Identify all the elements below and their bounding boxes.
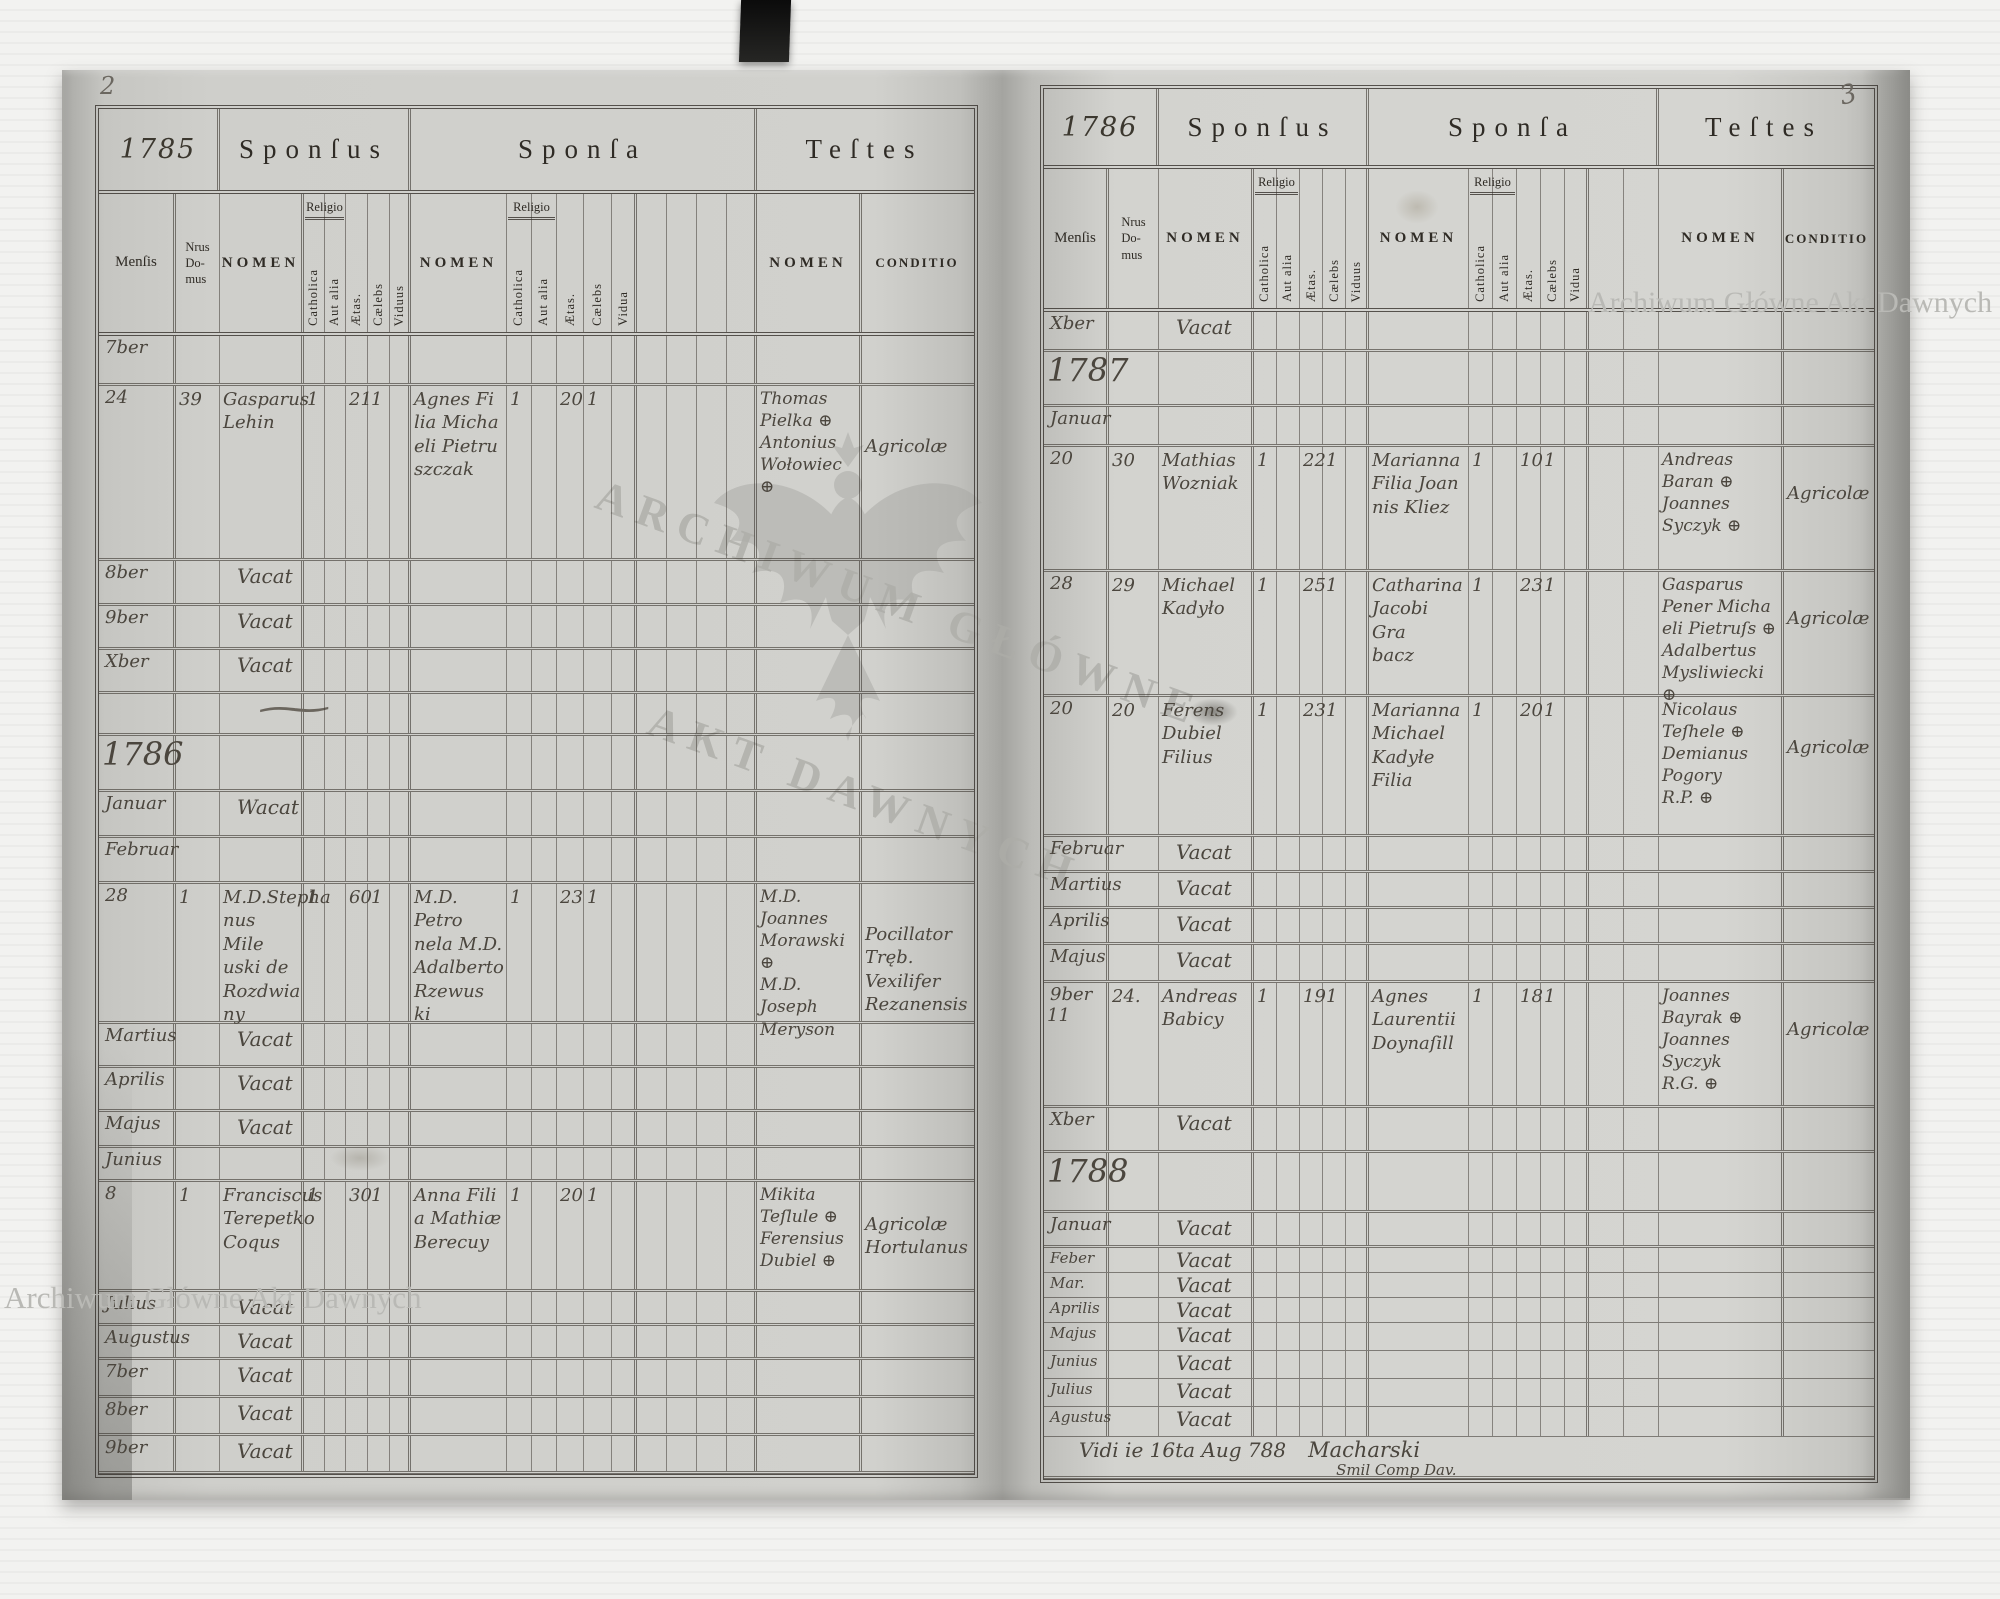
sponsa-aut-alia-cell [1493, 572, 1517, 694]
blank-cell [727, 606, 757, 647]
blank-cell [1624, 1153, 1659, 1210]
sponsus-viduus-cell [1346, 1351, 1369, 1378]
sponsus-aut-alia-cell [325, 606, 346, 647]
testes-name-cell [757, 650, 862, 691]
sponsa-catholica-cell [1469, 1351, 1493, 1378]
sponsus-aetas-cell [346, 650, 368, 691]
sponsus-aut-alia-cell [325, 1182, 346, 1289]
sponsa-caelebs-cell [584, 1112, 612, 1145]
sponsus-aut-alia-cell [1277, 945, 1300, 980]
register-row: FebruarVacat [1044, 837, 1874, 873]
sponsus-catholica-cell [304, 1398, 325, 1433]
mensis-cell: Xber [1044, 1108, 1109, 1150]
sponsa-caelebs-cell [1541, 1108, 1565, 1150]
sponsa-name-cell [411, 1068, 507, 1109]
conditio-cell [862, 561, 972, 603]
sponsa-caelebs-cell [1541, 1213, 1565, 1245]
sponsus-catholica-cell [1254, 873, 1277, 906]
blank-cell [697, 1112, 727, 1145]
sponsa-catholica-cell [1469, 1213, 1493, 1245]
sponsus-name-cell: Vacat [1159, 312, 1254, 349]
sponsus-name-cell: Vacat [1159, 873, 1254, 906]
sponsa-catholica-cell [507, 1292, 532, 1323]
sponsus-caelebs-cell [368, 1436, 390, 1471]
sponsa-aut-alia-cell [1493, 1213, 1517, 1245]
sponsus-aut-alia-cell [325, 1326, 346, 1357]
conditio-cell [1784, 1273, 1869, 1297]
sponsa-aut-alia-cell [532, 650, 557, 691]
house-number-cell [176, 650, 220, 691]
sponsa-catholica-cell [1469, 1323, 1493, 1350]
page-number-left: 2 [100, 72, 115, 100]
testes-name-cell [757, 1068, 862, 1109]
testes-name-cell [757, 792, 862, 835]
sponsa-vidua-cell [612, 838, 637, 881]
sponsus-caelebs-cell [368, 1326, 390, 1357]
register-row: 1787 [1044, 352, 1874, 407]
blank-cell [697, 1398, 727, 1433]
blank-cell [697, 1182, 727, 1289]
house-number-cell [1109, 407, 1159, 444]
blank-cell [697, 1436, 727, 1471]
mensis-cell [99, 694, 176, 733]
house-number-cell [176, 1360, 220, 1395]
sponsa-caelebs-cell [1541, 1323, 1565, 1350]
house-number-cell [176, 1326, 220, 1357]
sponsus-aut-alia-cell [1277, 312, 1300, 349]
mensis-cell: 9ber [99, 1436, 176, 1471]
sponsa-vidua-cell [612, 1024, 637, 1065]
sponsa-aetas-cell [1517, 837, 1541, 870]
sponsa-vidua-cell [1565, 1153, 1589, 1210]
sponsus-aut-alia-cell [1277, 1323, 1300, 1350]
conditio-cell [1784, 837, 1869, 870]
sponsus-aut-alia-cell [1277, 837, 1300, 870]
sponsa-aetas-cell [557, 1360, 584, 1395]
sponsus-viduus-cell [390, 650, 411, 691]
blank-cell [1624, 1108, 1659, 1150]
blank-cell [697, 1068, 727, 1109]
conditio-cell [862, 694, 972, 733]
blank-cell [1589, 1407, 1624, 1436]
sponsus-aetas-cell [1300, 1248, 1323, 1272]
blank-column [637, 194, 667, 332]
testes-name-cell: M.D. Joannes Morawski ⊕ M.D. Joseph Mery… [757, 884, 862, 1021]
sponsa-aetas-cell [557, 1436, 584, 1471]
sponsus-viduus-cell [390, 736, 411, 789]
sponsa-vidua-cell [612, 1068, 637, 1109]
testes-name-cell [1659, 1153, 1784, 1210]
conditio-cell [862, 650, 972, 691]
sponsa-aetas-cell: 23 [557, 884, 584, 1021]
sponsus-catholica-cell [1254, 1213, 1277, 1245]
blank-cell [727, 336, 757, 383]
sponsus-viduus-cell [390, 1182, 411, 1289]
sponsa-name-cell [411, 1360, 507, 1395]
blank-cell [727, 1360, 757, 1395]
sponsa-catholica-cell [507, 1398, 532, 1433]
register-row: Junius [99, 1148, 974, 1182]
blank-cell [1589, 909, 1624, 942]
blank-cell [1589, 1153, 1624, 1210]
sponsus-caelebs-cell [1323, 1323, 1346, 1350]
scanner-clip [739, 0, 791, 62]
sponsus-catholica-cell [1254, 312, 1277, 349]
conditio-cell [862, 1292, 972, 1323]
inspector-signature: Macharski [1308, 1437, 1456, 1464]
blank-cell [667, 1024, 697, 1065]
sponsus-name-cell: Vacat [1159, 1298, 1254, 1322]
register-row: Januar [1044, 407, 1874, 447]
sponsus-aetas-cell [1300, 1108, 1323, 1150]
sponsa-catholica-cell: 1 [507, 1182, 532, 1289]
testes-name-cell [1659, 1298, 1784, 1322]
sponsus-caelebs-cell [368, 1068, 390, 1109]
sponsus-aetas-cell [1300, 312, 1323, 349]
sponsa-aetas-cell [1517, 1351, 1541, 1378]
sponsus-catholica-cell [304, 561, 325, 603]
sponsa-name-cell [411, 792, 507, 835]
mensis-cell: Martius [1044, 873, 1109, 906]
column-label-nomen: NOMEN [220, 194, 304, 332]
sponsus-name-cell: Vacat [220, 1398, 304, 1433]
sponsus-aut-alia-cell [1277, 352, 1300, 404]
sponsa-aut-alia-cell [1493, 697, 1517, 834]
conditio-cell: Agricolæ Hortulanus [862, 1182, 972, 1289]
register-row: JanuarWacat [99, 792, 974, 838]
mensis-cell: Augustus [99, 1326, 176, 1357]
sponsus-name-cell: Vacat [1159, 1213, 1254, 1245]
sponsa-vidua-cell [1565, 352, 1589, 404]
sponsa-caelebs-cell [584, 1024, 612, 1065]
sponsus-aut-alia-cell [325, 1398, 346, 1433]
sponsus-aut-alia-cell [325, 838, 346, 881]
house-number-cell [1109, 1108, 1159, 1150]
sponsa-caelebs-cell [584, 1068, 612, 1109]
sponsa-aetas-cell [557, 694, 584, 733]
house-number-cell [1109, 1379, 1159, 1406]
conditio-cell [862, 1326, 972, 1357]
sponsus-aut-alia-cell [1277, 1213, 1300, 1245]
sponsus-aut-alia-cell [325, 561, 346, 603]
house-number-cell [176, 336, 220, 383]
testes-name-cell [1659, 1273, 1784, 1297]
blank-cell [1624, 1273, 1659, 1297]
mensis-cell: Majus [1044, 945, 1109, 980]
sponsus-caelebs-cell [1323, 312, 1346, 349]
sponsus-aut-alia-cell [325, 1148, 346, 1179]
sponsus-aetas-cell: 21 [346, 386, 368, 558]
sponsus-aetas-cell [346, 561, 368, 603]
blank-cell [727, 1112, 757, 1145]
sponsa-aut-alia-cell [532, 884, 557, 1021]
blank-cell [727, 1292, 757, 1323]
mensis-cell: Mar. [1044, 1273, 1109, 1297]
house-number-cell [176, 792, 220, 835]
sponsa-name-cell [411, 606, 507, 647]
blank-cell [1589, 572, 1624, 694]
mensis-cell: Junius [99, 1148, 176, 1179]
sponsa-aut-alia-cell [532, 838, 557, 881]
sponsus-viduus-cell [1346, 407, 1369, 444]
conditio-cell [1784, 1248, 1869, 1272]
sponsa-vidua-cell [1565, 873, 1589, 906]
sponsus-aetas-cell: 19 [1300, 983, 1323, 1105]
left-header-band: 1785SponſusSponſaTeſtes [99, 109, 974, 194]
sponsus-viduus-cell [1346, 572, 1369, 694]
blank-cell [637, 650, 667, 691]
house-number-cell [176, 1398, 220, 1433]
sponsa-vidua-cell [612, 1292, 637, 1323]
sponsa-vidua-cell [612, 694, 637, 733]
blank-cell [727, 1024, 757, 1065]
sponsus-viduus-cell [1346, 909, 1369, 942]
sponsus-name-cell: Vacat [1159, 837, 1254, 870]
blank-column [667, 194, 697, 332]
conditio-cell: Agricolæ [1784, 983, 1869, 1105]
house-number-cell [1109, 312, 1159, 349]
column-label-conditio: CONDITIO [862, 194, 972, 332]
sponsus-viduus-cell [1346, 1248, 1369, 1272]
sponsus-caelebs-cell [1323, 909, 1346, 942]
sponsa-aetas-cell [1517, 1298, 1541, 1322]
blank-cell [1589, 1213, 1624, 1245]
sponsus-aut-alia-cell [1277, 697, 1300, 834]
sponsa-name-cell [1369, 1351, 1469, 1378]
sponsus-viduus-cell [1346, 352, 1369, 404]
column-label-vidua: Vidua [612, 194, 637, 332]
sponsa-aut-alia-cell [532, 694, 557, 733]
blank-cell [697, 1148, 727, 1179]
sponsus-aetas-cell [1300, 1323, 1323, 1350]
sponsa-aetas-cell [1517, 1248, 1541, 1272]
sponsa-vidua-cell [1565, 312, 1589, 349]
sponsus-name-cell: Vacat [220, 1436, 304, 1471]
blank-cell [697, 838, 727, 881]
register-row: AprilisVacat [99, 1068, 974, 1112]
sponsus-catholica-cell [304, 1360, 325, 1395]
blank-cell [727, 792, 757, 835]
conditio-cell [862, 606, 972, 647]
blank-cell [667, 838, 697, 881]
sponsa-aut-alia-cell [1493, 407, 1517, 444]
blank-cell [667, 606, 697, 647]
sponsa-name-cell: Catharina Jacobi Gra bacz [1369, 572, 1469, 694]
register-row: JuniusVacat [1044, 1351, 1874, 1379]
sponsa-caelebs-cell [584, 650, 612, 691]
sponsa-aut-alia-cell [1493, 312, 1517, 349]
sponsus-catholica-cell [1254, 1248, 1277, 1272]
blank-cell [637, 386, 667, 558]
blank-cell [697, 386, 727, 558]
testes-name-cell [757, 1326, 862, 1357]
sponsa-aetas-cell [1517, 1407, 1541, 1436]
house-number-cell [176, 838, 220, 881]
sponsa-name-cell [1369, 1273, 1469, 1297]
conditio-cell [1784, 909, 1869, 942]
sponsus-viduus-cell [1346, 697, 1369, 834]
sponsa-catholica-cell [1469, 873, 1493, 906]
sponsa-aut-alia-cell [532, 736, 557, 789]
mensis-cell: Julius [1044, 1379, 1109, 1406]
testes-name-cell [757, 1436, 862, 1471]
register-row: XberVacat [99, 650, 974, 694]
blank-cell [727, 1182, 757, 1289]
sponsus-catholica-cell [1254, 909, 1277, 942]
sponsa-aut-alia-cell [1493, 352, 1517, 404]
sponsa-catholica-cell [507, 650, 532, 691]
sponsa-caelebs-cell [1541, 837, 1565, 870]
register-row: FeberVacat [1044, 1248, 1874, 1273]
blank-cell [1624, 1323, 1659, 1350]
mensis-cell: Aprilis [99, 1068, 176, 1109]
column-label-nrus-domus: Nrus Do- mus [1109, 169, 1159, 308]
conditio-cell: Agricolæ [1784, 572, 1869, 694]
testes-name-cell [1659, 837, 1784, 870]
conditio-cell: Pocillator Tręb. Vexilifer Rezanensis [862, 884, 972, 1021]
house-number-cell [1109, 837, 1159, 870]
sponsa-name-cell [1369, 909, 1469, 942]
sponsus-name-cell [1159, 407, 1254, 444]
sponsa-catholica-cell [1469, 1248, 1493, 1272]
sponsus-caelebs-cell [368, 1024, 390, 1065]
sponsus-catholica-cell [1254, 1153, 1277, 1210]
column-label-nomen: NOMEN [1369, 169, 1469, 308]
mensis-cell: Agustus [1044, 1407, 1109, 1436]
sponsa-caelebs-cell [1541, 1298, 1565, 1322]
register-row: 7ber [99, 336, 974, 386]
right-year-label: 1786 [1044, 89, 1159, 165]
column-label-caelebs: Cælebs [368, 194, 390, 332]
conditio-cell: Agricolæ [1784, 447, 1869, 569]
sponsus-catholica-cell [1254, 1323, 1277, 1350]
testes-name-cell: Joannes Bayrak ⊕ Joannes Syczyk R.G. ⊕ [1659, 983, 1784, 1105]
sponsa-vidua-cell [612, 736, 637, 789]
sponsa-aut-alia-cell [1493, 1248, 1517, 1272]
sponsa-caelebs-cell [584, 561, 612, 603]
sponsa-vidua-cell [1565, 1273, 1589, 1297]
sponsa-name-cell [1369, 837, 1469, 870]
house-number-cell: 39 [176, 386, 220, 558]
sponsa-aut-alia-cell [532, 1068, 557, 1109]
sponsa-name-cell: Marianna Michael Kadyłe Filia [1369, 697, 1469, 834]
mensis-cell: 7ber [99, 336, 176, 383]
sponsa-catholica-cell [1469, 1153, 1493, 1210]
sponsus-aetas-cell: 23 [1300, 697, 1323, 834]
sponsa-aetas-cell [1517, 1213, 1541, 1245]
register-row: AprilisVacat [1044, 1298, 1874, 1323]
sponsa-vidua-cell [1565, 572, 1589, 694]
sponsus-viduus-cell [1346, 1153, 1369, 1210]
sponsus-viduus-cell [390, 336, 411, 383]
conditio-cell [862, 1148, 972, 1179]
sponsus-name-cell: Vacat [1159, 945, 1254, 980]
sponsus-viduus-cell [390, 694, 411, 733]
sponsa-name-cell [411, 561, 507, 603]
sponsa-name-cell [1369, 407, 1469, 444]
sponsa-name-cell [411, 694, 507, 733]
testes-name-cell [757, 1112, 862, 1145]
blank-cell [637, 694, 667, 733]
register-row: AgustusVacat [1044, 1407, 1874, 1437]
sponsus-name-cell: Wacat [220, 792, 304, 835]
sponsa-caelebs-cell: 1 [584, 386, 612, 558]
column-label-religio: Religio [1470, 175, 1515, 195]
sponsa-name-cell [1369, 1213, 1469, 1245]
sponsus-aetas-cell [1300, 352, 1323, 404]
conditio-cell [862, 1024, 972, 1065]
sponsa-aut-alia-cell [532, 1398, 557, 1433]
conditio-cell [1784, 407, 1869, 444]
sponsus-aut-alia-cell [1277, 1108, 1300, 1150]
column-label-religio: Religio [305, 200, 344, 220]
mensis-cell: Aprilis [1044, 909, 1109, 942]
blank-cell [1624, 983, 1659, 1105]
blank-cell [1589, 945, 1624, 980]
blank-cell [1589, 697, 1624, 834]
sponsus-caelebs-cell [1323, 837, 1346, 870]
blank-cell [1589, 837, 1624, 870]
sponsus-aut-alia-cell [325, 884, 346, 1021]
sponsa-catholica-cell [507, 561, 532, 603]
sponsa-caelebs-cell [1541, 352, 1565, 404]
testes-name-cell [1659, 1323, 1784, 1350]
mensis-cell: Xber [99, 650, 176, 691]
sponsa-catholica-cell [507, 1360, 532, 1395]
sponsa-aetas-cell [1517, 909, 1541, 942]
sponsus-aut-alia-cell [325, 1024, 346, 1065]
sponsa-catholica-cell [1469, 1407, 1493, 1436]
sponsa-caelebs-cell [584, 736, 612, 789]
sponsus-name-cell: Vacat [1159, 1273, 1254, 1297]
sponsus-name-cell: Franciscus Terepetko Coqus [220, 1182, 304, 1289]
house-number-cell [1109, 1298, 1159, 1322]
blank-cell [667, 386, 697, 558]
blank-cell [697, 650, 727, 691]
house-number-cell: 20 [1109, 697, 1159, 834]
sponsa-vidua-cell [612, 1326, 637, 1357]
blank-cell [667, 650, 697, 691]
sponsus-aetas-cell [346, 1068, 368, 1109]
testes-name-cell [757, 561, 862, 603]
sponsa-caelebs-cell [584, 1398, 612, 1433]
column-label-nrus-domus: Nrus Do- mus [176, 194, 220, 332]
testes-name-cell [757, 1148, 862, 1179]
sponsa-caelebs-cell [1541, 873, 1565, 906]
sponsa-name-cell [411, 838, 507, 881]
section-header-testes: Teſtes [1659, 89, 1869, 165]
sponsus-name-cell: Vacat [1159, 1108, 1254, 1150]
conditio-cell [1784, 1351, 1869, 1378]
house-number-cell [1109, 1153, 1159, 1210]
sponsa-aetas-cell [1517, 312, 1541, 349]
sponsa-name-cell: Anna Fili a Mathiæ Berecuy [411, 1182, 507, 1289]
mensis-cell: Feber [1044, 1248, 1109, 1272]
sponsus-viduus-cell [1346, 1298, 1369, 1322]
sponsa-caelebs-cell [584, 1326, 612, 1357]
mensis-cell: 1786 [99, 736, 176, 789]
sponsa-vidua-cell [1565, 697, 1589, 834]
sponsa-caelebs-cell [1541, 1273, 1565, 1297]
sponsus-aut-alia-cell [1277, 1379, 1300, 1406]
sponsa-aetas-cell [1517, 352, 1541, 404]
sponsus-aut-alia-cell [325, 694, 346, 733]
sponsus-aetas-cell [346, 694, 368, 733]
blank-cell [637, 1112, 667, 1145]
sponsa-aetas-cell [1517, 1323, 1541, 1350]
blank-cell [1624, 873, 1659, 906]
sponsa-aut-alia-cell [1493, 983, 1517, 1105]
